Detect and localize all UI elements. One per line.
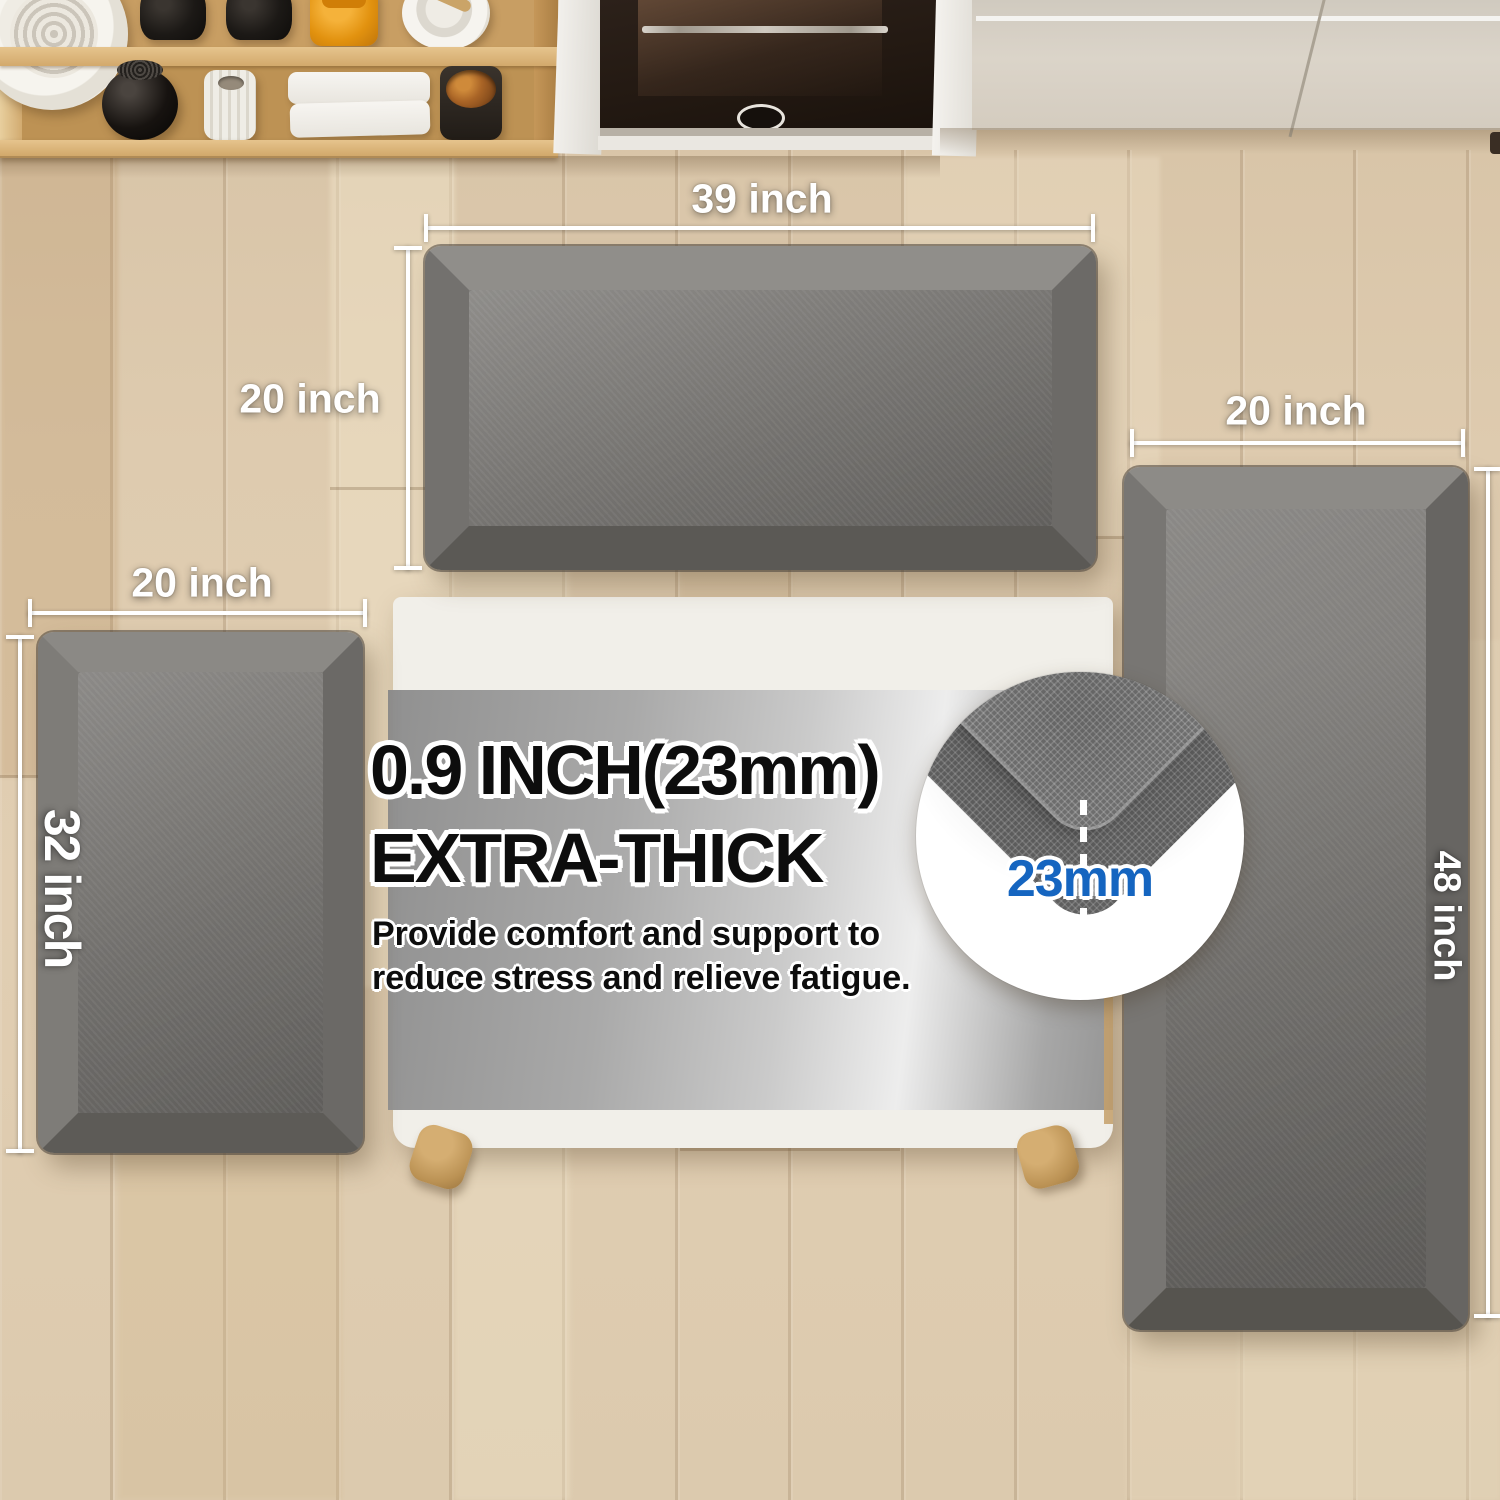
left-mat-width-tick-right <box>363 599 367 627</box>
top-mat-depth-label: 20 inch <box>239 376 380 423</box>
left-mat-surface <box>78 672 323 1113</box>
floor-plank-joint <box>680 1148 900 1151</box>
description-line2: reduce stress and relieve fatigue. <box>372 956 911 1000</box>
top-mat-width-label: 39 inch <box>691 176 832 223</box>
right-mat-width-line <box>1130 441 1465 445</box>
oven-window-reflection <box>638 0 882 96</box>
left-mat-length-tick-bottom <box>6 1149 34 1153</box>
left-mat-width-label: 20 inch <box>131 560 272 607</box>
folded-towel <box>288 72 430 104</box>
left-mat-width-tick-left <box>28 599 32 627</box>
left-mat-width-line <box>28 611 367 615</box>
oven-left-frame <box>553 0 606 155</box>
orange-jar-cap <box>322 0 366 8</box>
top-mat-depth-tick-top <box>394 246 422 250</box>
black-canister <box>140 0 206 40</box>
product-image: 0.9 INCH(23mm) EXTRA-THICK Provide comfo… <box>0 0 1500 1500</box>
cabinet-edge-highlight <box>976 16 1500 21</box>
top-mat-surface <box>469 290 1052 526</box>
thickness-value-badge: 23mm <box>1007 849 1153 909</box>
black-vase-lid <box>117 60 163 80</box>
right-mat-width-tick-left <box>1130 429 1134 457</box>
top-mat-depth-line <box>406 246 410 570</box>
right-mat-length-tick-top <box>1474 467 1500 471</box>
oven-handle <box>642 26 888 33</box>
black-canister <box>226 0 292 40</box>
shelf-board-upper <box>0 47 558 66</box>
thickness-headline: 0.9 INCH(23mm) EXTRA-THICK <box>370 726 879 902</box>
headline-line2: EXTRA-THICK <box>370 814 879 902</box>
oven-base <box>598 136 940 150</box>
right-mat-length-line <box>1486 467 1490 1318</box>
left-mat-length-tick-top <box>6 635 34 639</box>
top-mat-width-line <box>424 226 1095 230</box>
left-mat-length-label: 32 inch <box>33 809 91 967</box>
cabinet-floor-shadow <box>940 128 1500 154</box>
white-vase-opening <box>218 76 244 90</box>
right-mat-width-tick-right <box>1461 429 1465 457</box>
folded-towel <box>290 100 431 138</box>
top-mat <box>425 246 1096 570</box>
description-line1: Provide comfort and support to <box>372 912 911 956</box>
nut-jar-contents <box>446 70 496 108</box>
headline-line1: 0.9 INCH(23mm) <box>370 726 879 814</box>
top-mat-width-tick-left <box>424 214 428 242</box>
thickness-description: Provide comfort and support to reduce st… <box>372 912 911 1000</box>
left-mat-length-line <box>18 635 22 1153</box>
top-mat-depth-tick-bottom <box>394 566 422 570</box>
top-mat-width-tick-right <box>1091 214 1095 242</box>
right-mat-length-label: 48 inch <box>1425 851 1468 982</box>
right-mat-width-label: 20 inch <box>1225 388 1366 435</box>
wall-object <box>1490 132 1500 154</box>
right-mat-length-tick-bottom <box>1474 1314 1500 1318</box>
